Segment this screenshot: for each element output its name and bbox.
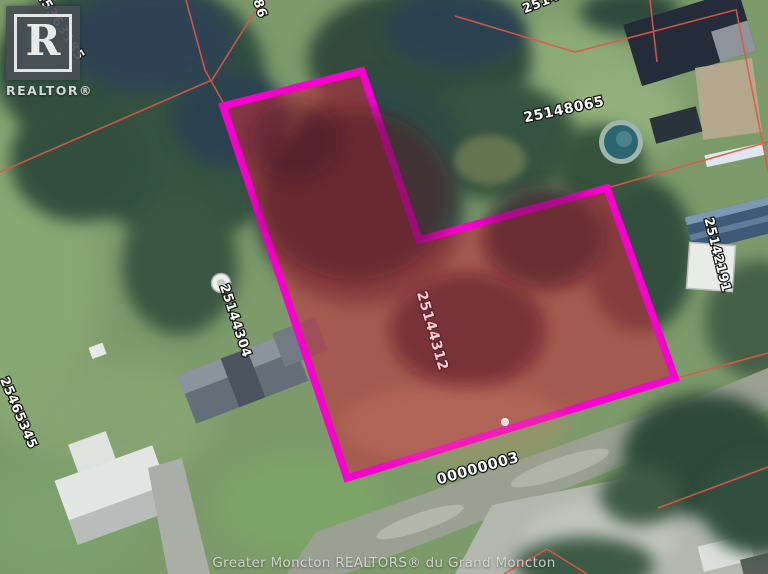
- attribution-text: Greater Moncton REALTORS® du Grand Monct…: [0, 555, 768, 571]
- realtor-logo-icon: R: [6, 6, 80, 80]
- driveway-northeast: [695, 58, 762, 140]
- realtor-watermark: R REALTOR®: [6, 6, 86, 98]
- pool: [599, 120, 643, 164]
- realtor-logo-frame: R: [14, 14, 72, 72]
- realtor-wordmark: REALTOR®: [6, 83, 86, 98]
- aerial-map-canvas: 25363185 586 2514 25148065 25142191 2514…: [0, 0, 768, 574]
- listing-map-image[interactable]: 25363185 586 2514 25148065 25142191 2514…: [0, 0, 768, 574]
- realtor-logo-r: R: [26, 20, 61, 62]
- lot-marker-dot: [502, 419, 509, 426]
